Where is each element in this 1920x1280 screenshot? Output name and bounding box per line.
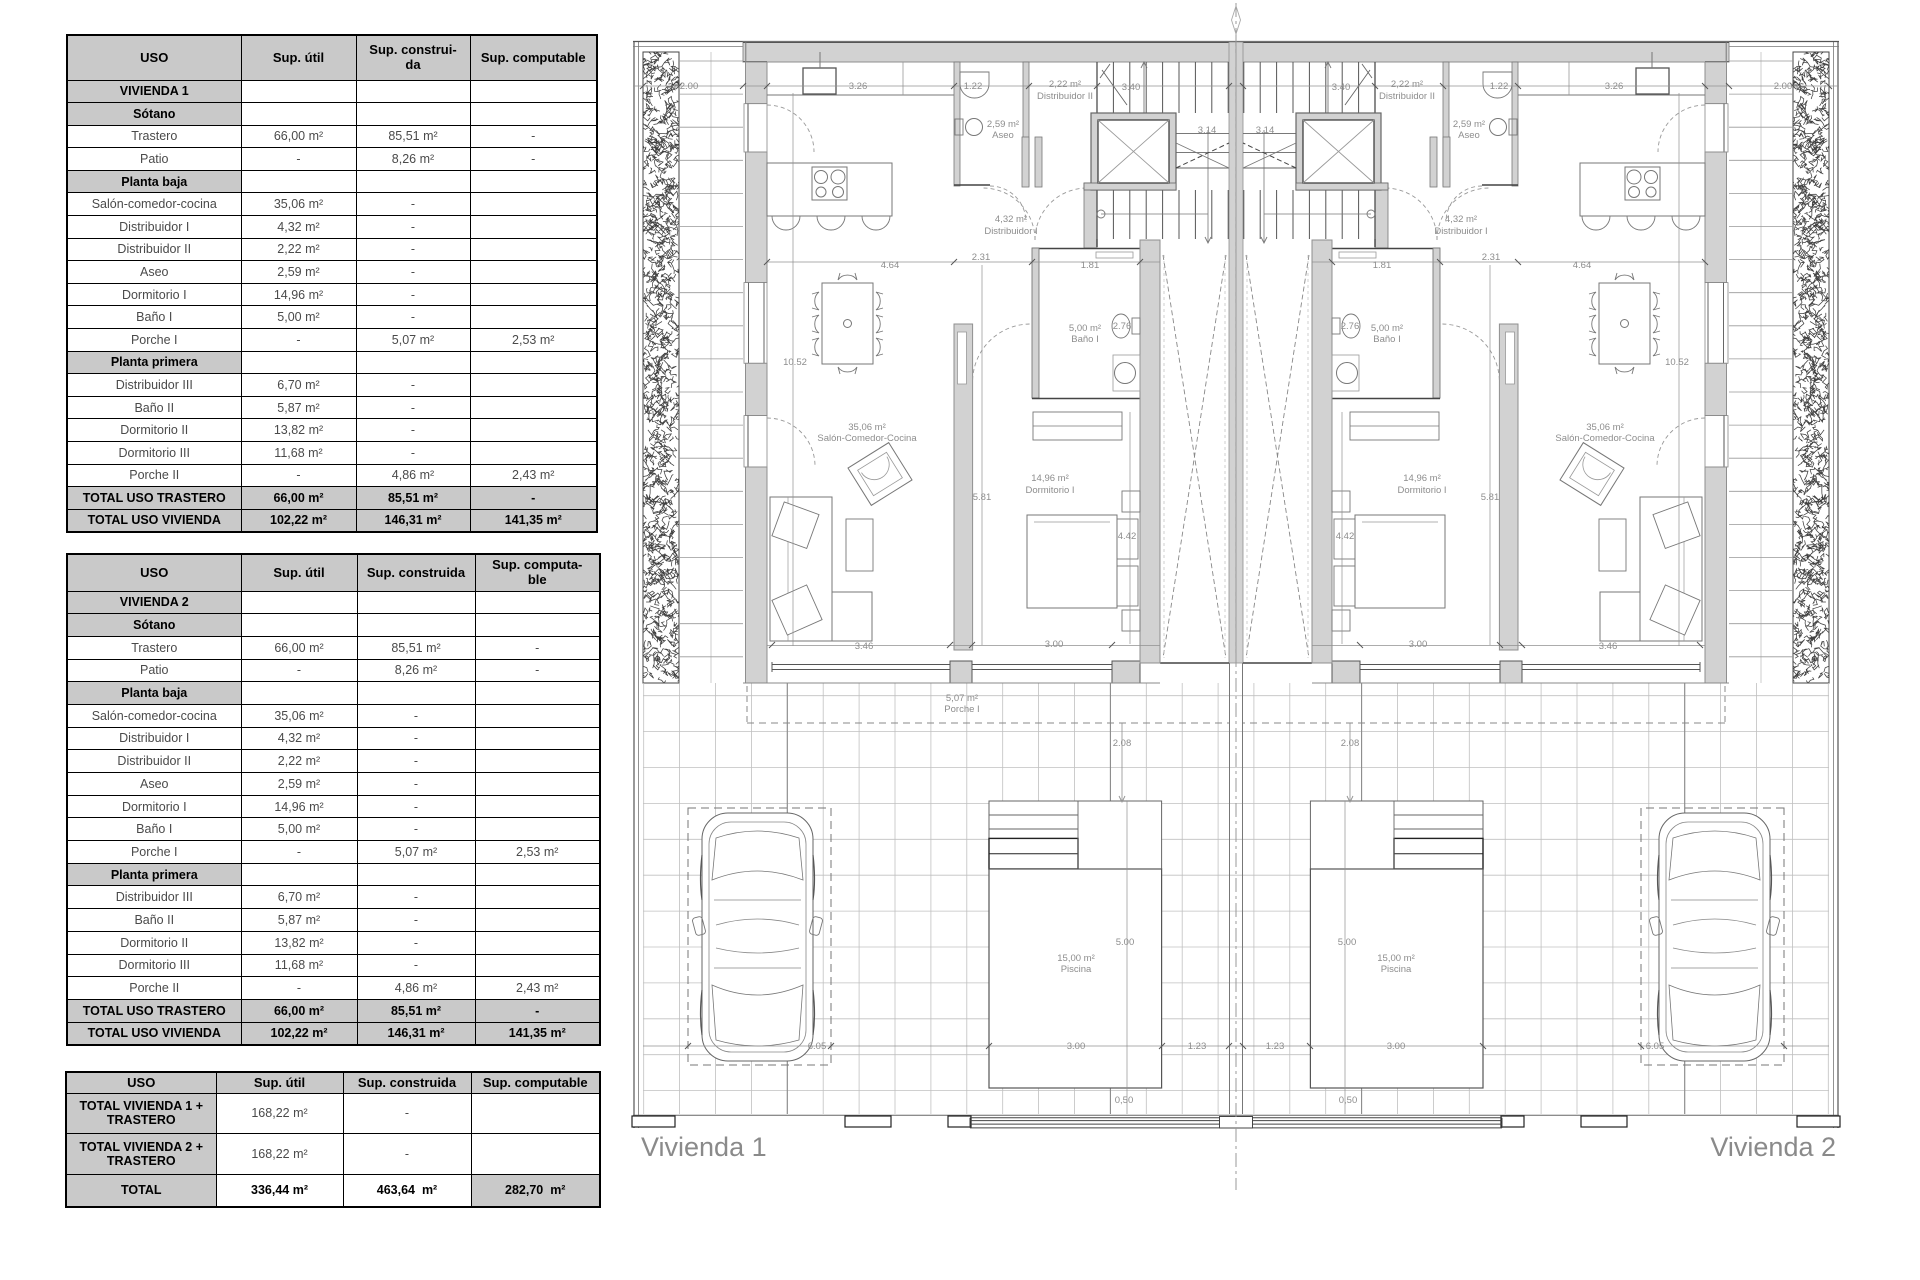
svg-text:Baño I: Baño I	[1373, 334, 1400, 345]
svg-text:5.00: 5.00	[1338, 937, 1357, 948]
svg-text:Vivienda 1: Vivienda 1	[641, 1132, 767, 1162]
svg-text:3.26: 3.26	[1605, 81, 1624, 92]
svg-text:4.42: 4.42	[1336, 531, 1355, 542]
svg-text:Distribuidor II: Distribuidor II	[1037, 91, 1093, 102]
svg-text:4,32 m²: 4,32 m²	[995, 214, 1027, 225]
svg-text:2.76: 2.76	[1341, 321, 1360, 332]
svg-text:3.40: 3.40	[1332, 82, 1351, 93]
svg-text:5.81: 5.81	[1481, 492, 1500, 503]
svg-text:5,00 m²: 5,00 m²	[1069, 323, 1101, 334]
svg-text:10.52: 10.52	[783, 357, 807, 368]
svg-text:Salón-Comedor-Cocina: Salón-Comedor-Cocina	[817, 433, 917, 444]
svg-text:2.31: 2.31	[1482, 252, 1501, 263]
svg-text:2,22 m²: 2,22 m²	[1391, 79, 1423, 90]
svg-text:2,59 m²: 2,59 m²	[1453, 119, 1485, 130]
svg-text:1.22: 1.22	[964, 81, 983, 92]
svg-text:3.00: 3.00	[1409, 639, 1428, 650]
svg-text:2,22 m²: 2,22 m²	[1049, 79, 1081, 90]
svg-text:Piscina: Piscina	[1381, 964, 1412, 975]
svg-text:3.00: 3.00	[1387, 1041, 1406, 1052]
svg-text:Vivienda 2: Vivienda 2	[1710, 1132, 1836, 1162]
svg-text:14,96 m²: 14,96 m²	[1403, 473, 1441, 484]
svg-text:35,06 m²: 35,06 m²	[1586, 422, 1624, 433]
svg-text:3.14: 3.14	[1256, 125, 1275, 136]
svg-text:Aseo: Aseo	[992, 130, 1014, 141]
svg-text:3.00: 3.00	[1045, 639, 1064, 650]
svg-text:4.64: 4.64	[881, 260, 900, 271]
svg-text:2.00: 2.00	[1774, 81, 1793, 92]
svg-text:Dormitorio I: Dormitorio I	[1397, 485, 1446, 496]
svg-text:0,50: 0,50	[1339, 1095, 1358, 1106]
svg-text:Baño I: Baño I	[1071, 334, 1098, 345]
svg-text:2.08: 2.08	[1341, 738, 1360, 749]
svg-text:10.52: 10.52	[1665, 357, 1689, 368]
svg-text:3.40: 3.40	[1122, 82, 1141, 93]
svg-text:Porche I: Porche I	[944, 704, 979, 715]
svg-text:35,06 m²: 35,06 m²	[848, 422, 886, 433]
svg-text:1.22: 1.22	[1490, 81, 1509, 92]
svg-text:1.23: 1.23	[1188, 1041, 1207, 1052]
svg-text:6.05: 6.05	[808, 1041, 827, 1052]
svg-text:4,32 m²: 4,32 m²	[1445, 214, 1477, 225]
svg-text:1.81: 1.81	[1081, 260, 1100, 271]
svg-text:3.00: 3.00	[1067, 1041, 1086, 1052]
svg-text:15,00 m²: 15,00 m²	[1377, 953, 1415, 964]
svg-text:Dormitorio I: Dormitorio I	[1025, 485, 1074, 496]
svg-text:3.26: 3.26	[849, 81, 868, 92]
svg-text:5,00 m²: 5,00 m²	[1371, 323, 1403, 334]
svg-text:3.14: 3.14	[1198, 125, 1217, 136]
svg-text:3.46: 3.46	[855, 641, 874, 652]
svg-text:2.00: 2.00	[680, 81, 699, 92]
svg-text:5.00: 5.00	[1116, 937, 1135, 948]
svg-text:2.76: 2.76	[1113, 321, 1132, 332]
svg-text:Aseo: Aseo	[1458, 130, 1480, 141]
svg-text:15,00 m²: 15,00 m²	[1057, 953, 1095, 964]
svg-text:2,59 m²: 2,59 m²	[987, 119, 1019, 130]
svg-text:Salón-Comedor-Cocina: Salón-Comedor-Cocina	[1555, 433, 1655, 444]
svg-text:Distribuidor I: Distribuidor I	[984, 226, 1037, 237]
svg-text:Distribuidor I: Distribuidor I	[1434, 226, 1487, 237]
svg-text:1.81: 1.81	[1373, 260, 1392, 271]
svg-text:4.42: 4.42	[1118, 531, 1137, 542]
svg-text:Distribuidor II: Distribuidor II	[1379, 91, 1435, 102]
svg-text:0,50: 0,50	[1115, 1095, 1134, 1106]
svg-text:2.31: 2.31	[972, 252, 991, 263]
svg-text:3.46: 3.46	[1599, 641, 1618, 652]
svg-text:4.64: 4.64	[1573, 260, 1592, 271]
svg-text:14,96 m²: 14,96 m²	[1031, 473, 1069, 484]
svg-text:6.05: 6.05	[1646, 1041, 1665, 1052]
svg-text:5,07 m²: 5,07 m²	[946, 693, 978, 704]
svg-text:5.81: 5.81	[973, 492, 992, 503]
svg-text:2.08: 2.08	[1113, 738, 1132, 749]
svg-text:1.23: 1.23	[1266, 1041, 1285, 1052]
svg-text:Piscina: Piscina	[1061, 964, 1092, 975]
